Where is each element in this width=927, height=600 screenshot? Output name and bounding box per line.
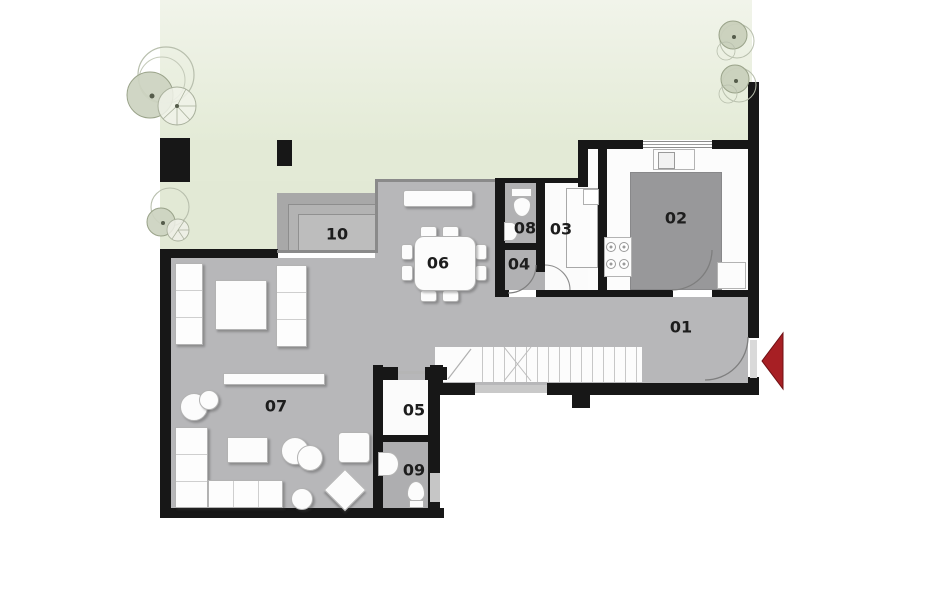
garden-area-top <box>160 0 752 140</box>
dining-chair-left-1 <box>401 244 413 260</box>
room-label-06: 06 <box>427 254 449 273</box>
kitchen-top-wall-left <box>578 140 643 149</box>
toilet-08-tank <box>511 188 532 197</box>
kitchen-window <box>643 141 712 148</box>
living-top-wall <box>160 249 278 258</box>
dining-chair-right-2 <box>475 265 487 281</box>
room-label-04: 04 <box>508 255 530 274</box>
dining-left-glazing <box>375 179 378 252</box>
kitchen-sink-bowl <box>658 152 675 169</box>
toilet-09-tank <box>409 500 424 508</box>
side-stool <box>291 488 313 510</box>
armchair <box>338 432 370 463</box>
kitchen-west-wall <box>578 149 588 187</box>
floor-plan: 01 02 03 04 05 06 07 08 09 10 <box>0 0 927 600</box>
dining-chair-right-1 <box>475 244 487 260</box>
kitchen-top-wall-right <box>712 140 759 149</box>
wc-mid-pier <box>536 250 545 272</box>
room-label-07: 07 <box>265 397 287 416</box>
garden-wall-pier-2 <box>277 140 292 166</box>
under-stair-strip <box>475 385 547 393</box>
corner-sofa-vertical <box>175 427 208 508</box>
room-label-08: 08 <box>514 219 536 238</box>
garden-wall-pier-1 <box>160 138 190 182</box>
coffee-table <box>227 437 268 463</box>
room05-left-wall <box>373 365 383 512</box>
corridor-bottom-wall-right <box>547 383 759 395</box>
dining-chair-bottom-2 <box>442 290 459 302</box>
room-label-03: 03 <box>550 220 572 239</box>
sink-09 <box>378 452 399 476</box>
garden-area-mid <box>160 140 578 181</box>
dining-chair-left-2 <box>401 265 413 281</box>
dining-top-glazing <box>375 179 495 182</box>
wc-divider-wall <box>495 243 545 250</box>
corner-sofa-horizontal <box>208 480 283 508</box>
room-label-05: 05 <box>403 401 425 420</box>
entrance-door-leaf <box>750 340 757 378</box>
dining-chair-bottom-1 <box>420 290 437 302</box>
sofa-side-table <box>215 280 267 330</box>
wc-mid-wall <box>536 183 545 250</box>
bottom-wc-wall-a <box>495 290 509 297</box>
right-wall-upper <box>748 82 759 140</box>
shower-corner-box <box>583 189 599 205</box>
corridor-wall-stub <box>572 395 590 408</box>
left-wall <box>160 249 171 518</box>
pouf-small <box>199 390 219 410</box>
bathroom-09-window <box>430 473 440 502</box>
room-label-09: 09 <box>403 461 425 480</box>
tv-console <box>223 373 325 385</box>
sofa-left <box>175 263 203 345</box>
terrace-glazing <box>277 250 378 253</box>
stairs-treads <box>472 347 642 382</box>
room05-door-leaf <box>398 371 425 374</box>
room05-top-wall-a <box>373 367 398 380</box>
room05-09-divider <box>383 435 428 442</box>
sofa-right <box>276 265 307 347</box>
entrance-arrow-icon <box>762 333 783 389</box>
room-label-01: 01 <box>670 318 692 337</box>
fridge <box>717 262 746 289</box>
stove <box>604 237 632 277</box>
bottom-wc-wall-c <box>712 290 759 297</box>
lounge-chair-2 <box>297 445 323 471</box>
room-label-10: 10 <box>326 225 348 244</box>
right-wall-main <box>748 149 759 338</box>
toilet-09-bowl <box>407 481 425 502</box>
room-label-02: 02 <box>665 209 687 228</box>
kitchen-island <box>630 172 722 290</box>
bottom-wc-wall-b <box>536 290 673 297</box>
sideboard <box>403 190 473 207</box>
